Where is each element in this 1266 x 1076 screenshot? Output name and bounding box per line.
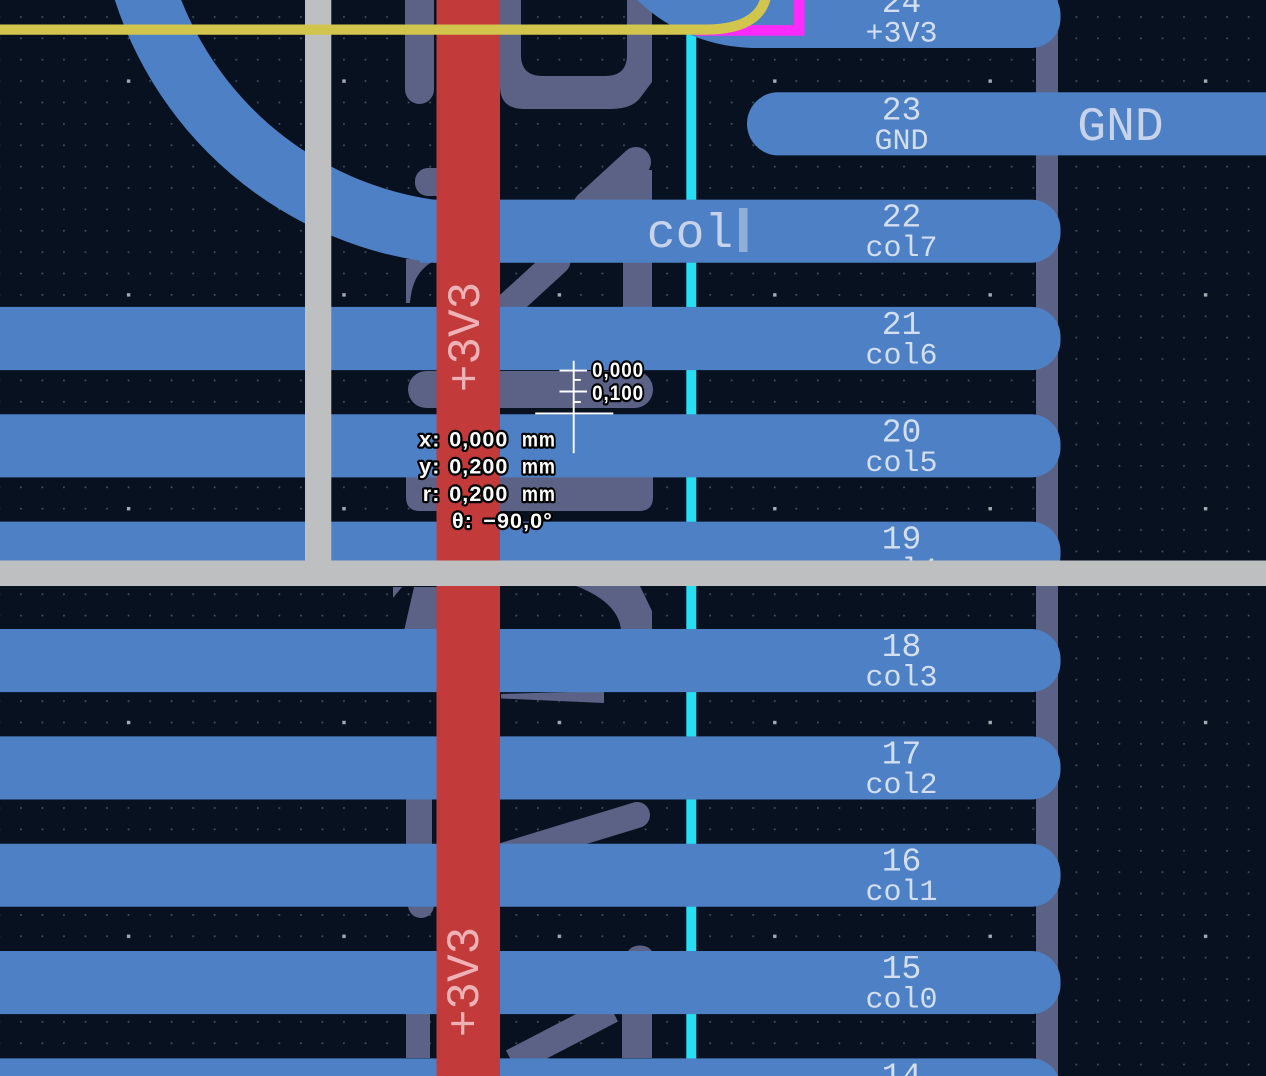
svg-text:r:: r: — [423, 482, 441, 506]
svg-text:col0: col0 — [865, 984, 937, 1018]
svg-text:15: 15 — [882, 951, 922, 988]
svg-text:col7: col7 — [865, 232, 937, 266]
svg-text:x:: x: — [419, 428, 440, 452]
svg-text:col6: col6 — [865, 340, 937, 374]
svg-text:0,000: 0,000 — [449, 428, 508, 452]
svg-text:GND: GND — [874, 125, 928, 159]
svg-text:mm: mm — [522, 482, 556, 506]
svg-text:0,100: 0,100 — [592, 381, 644, 405]
svg-text:GND: GND — [1077, 101, 1163, 155]
svg-text:0,200: 0,200 — [449, 482, 508, 506]
svg-text:0,000: 0,000 — [592, 358, 644, 382]
svg-text:20: 20 — [882, 414, 922, 451]
svg-text:0,200: 0,200 — [449, 455, 508, 479]
svg-text:col5: col5 — [865, 447, 937, 481]
svg-text:mm: mm — [522, 428, 556, 452]
svg-text:col: col — [647, 208, 733, 262]
svg-text:y:: y: — [419, 455, 440, 479]
svg-text:23: 23 — [882, 92, 922, 129]
svg-text:+3V3: +3V3 — [441, 282, 493, 392]
svg-text:mm: mm — [522, 455, 556, 479]
svg-text:−90,0°: −90,0° — [483, 509, 553, 533]
svg-text:+3V3: +3V3 — [440, 927, 492, 1037]
svg-text:16: 16 — [882, 844, 922, 881]
svg-text:col1: col1 — [865, 876, 937, 910]
svg-text:21: 21 — [882, 307, 922, 344]
svg-text:14: 14 — [882, 1058, 922, 1076]
svg-text:col2: col2 — [865, 769, 937, 803]
svg-text:18: 18 — [882, 629, 922, 666]
svg-text:+3V3: +3V3 — [865, 18, 937, 52]
svg-text:θ:: θ: — [452, 509, 473, 533]
svg-text:col3: col3 — [865, 662, 937, 696]
svg-text:19: 19 — [882, 522, 922, 559]
svg-text:17: 17 — [882, 736, 922, 773]
